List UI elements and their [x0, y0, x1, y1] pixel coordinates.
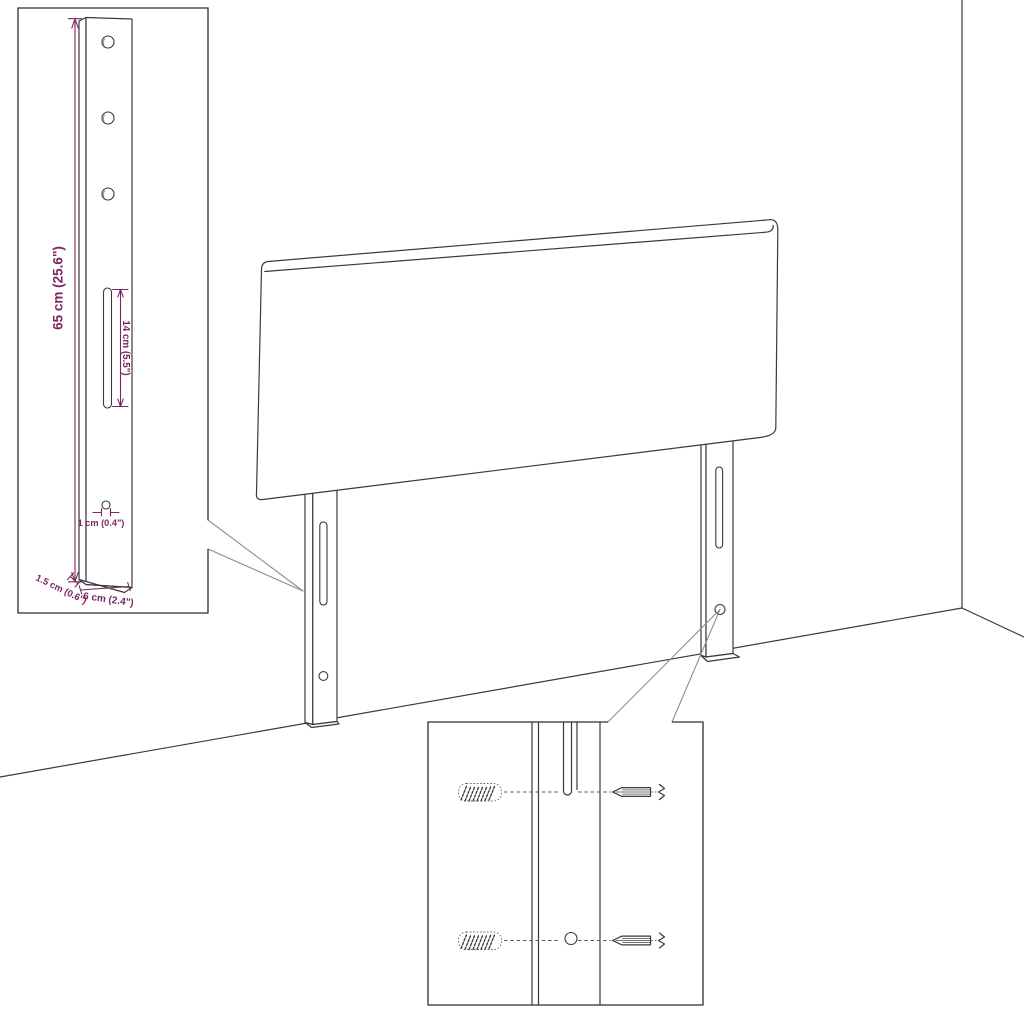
floor-line-right: [962, 608, 1024, 637]
leg-strip-hole: [565, 933, 577, 945]
leg-detail-callout: 65 cm (25.6") 14 cm (5.5") 1 cm (0.4") 1…: [18, 8, 208, 613]
hardware-row-top: [459, 784, 665, 802]
detail-leg-slot: [104, 288, 112, 408]
headboard-right-leg: [701, 440, 740, 662]
leader-line: [672, 610, 720, 723]
detail-leg-side-face: [79, 18, 86, 585]
dim-slot-label: 14 cm (5.5"): [120, 320, 131, 375]
headboard-panel: [256, 220, 777, 500]
left-leg-slot: [320, 522, 327, 605]
detail-leg-hole-2: [102, 112, 114, 124]
callout-leader-right: [608, 610, 720, 723]
wall-anchor-thread-hatch: [461, 785, 495, 801]
leg-strip-edges: [532, 722, 600, 1005]
dim-hole-label: 1 cm (0.4"): [78, 518, 125, 528]
detail-leg-strip: [532, 722, 600, 1005]
leader-line: [608, 610, 720, 723]
left-leg-hole: [319, 672, 328, 681]
right-leg-slot: [716, 467, 723, 548]
mounting-detail-callout: [428, 722, 703, 1005]
headboard-dimension-drawing: 65 cm (25.6") 14 cm (5.5") 1 cm (0.4") 1…: [0, 0, 1024, 1024]
detail-leg-hole-3: [102, 188, 114, 200]
dim-height-label: 65 cm (25.6"): [51, 246, 66, 330]
product-dimension-diagram: 65 cm (25.6") 14 cm (5.5") 1 cm (0.4") 1…: [0, 0, 1024, 1024]
left-leg-side-face: [305, 488, 313, 725]
screw: [613, 785, 665, 800]
detail-leg-small-hole: [102, 501, 110, 509]
dim-width-label: 6 cm (2.4"): [82, 591, 134, 609]
headboard-left-leg: [305, 485, 339, 728]
dim-height: 65 cm (25.6"): [51, 19, 82, 582]
callout-leader-left: [208, 520, 303, 591]
callout-border: [428, 722, 703, 1005]
detail-leg-hole-1: [102, 36, 114, 48]
headboard: [256, 220, 777, 728]
detail-leg: [79, 18, 132, 593]
screw-thread-squiggle: [659, 785, 665, 800]
hardware-row-bottom: [459, 932, 665, 950]
floor-line-left: [0, 608, 962, 777]
leg-strip-slot: [564, 722, 578, 795]
